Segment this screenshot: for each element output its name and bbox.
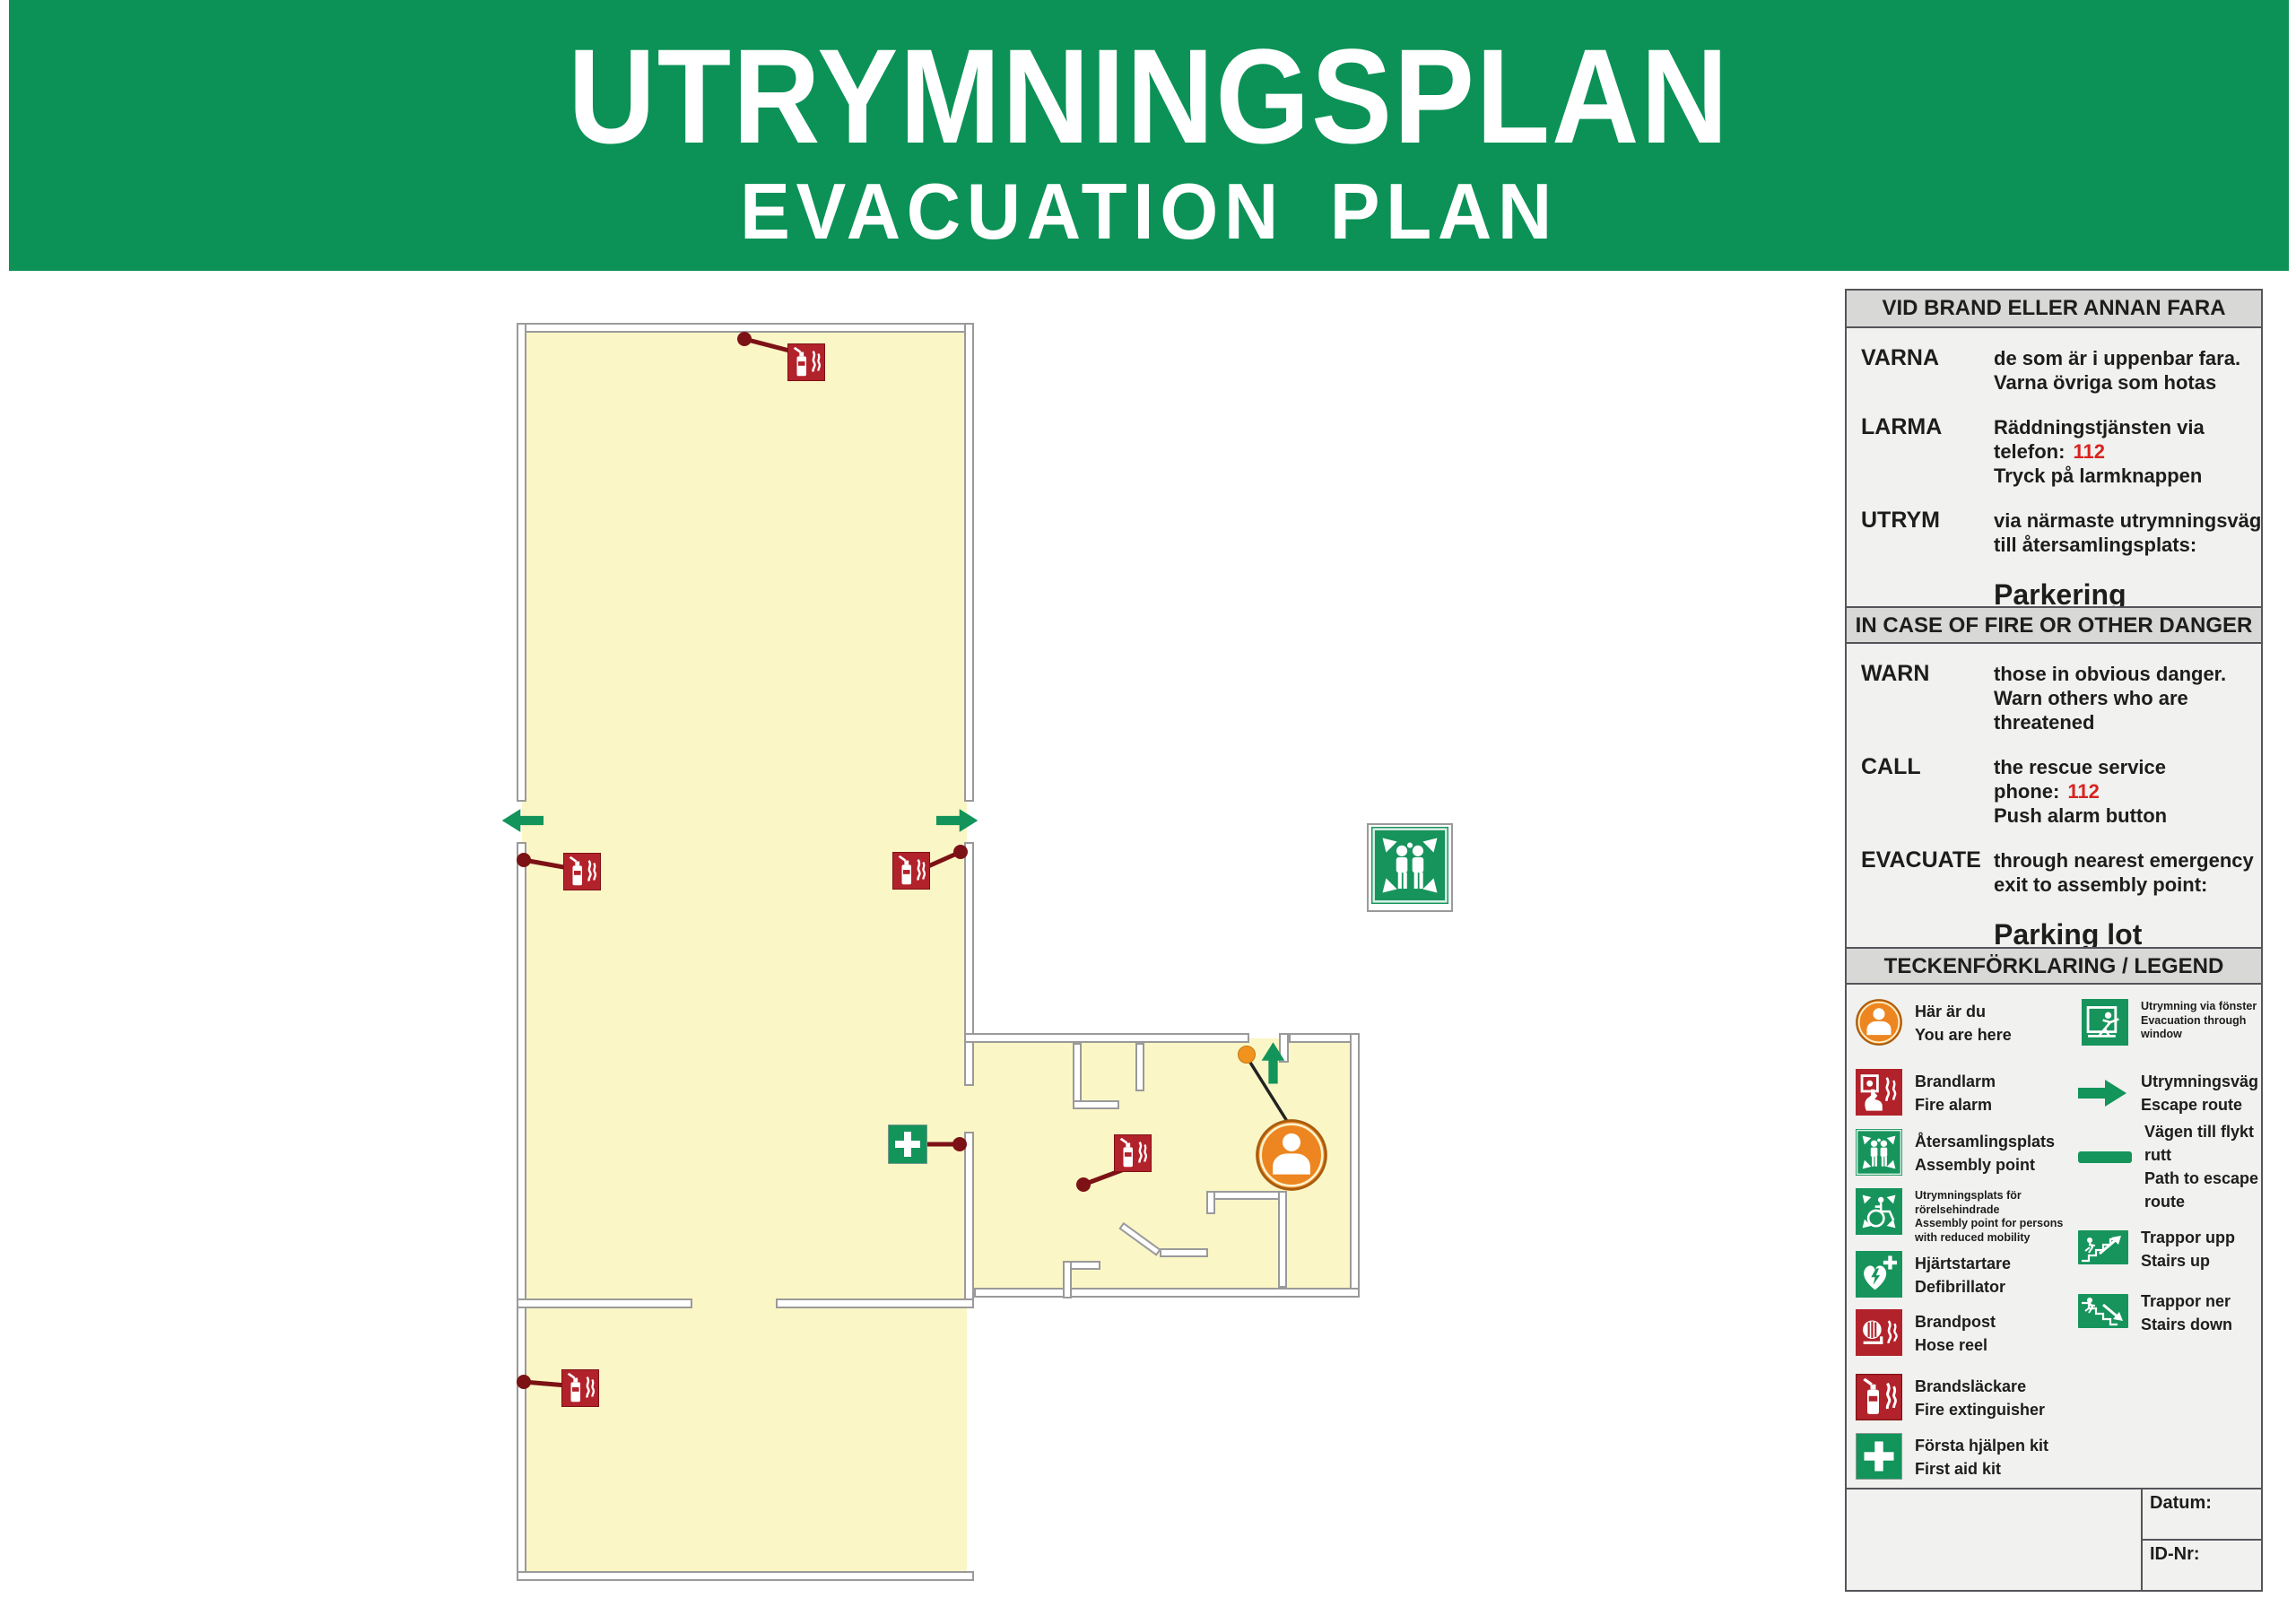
legend-item-fire-extinguisher: BrandsläckareFire extinguisher: [1856, 1374, 2067, 1425]
instruction-line: via närmaste utrymningsväg: [1994, 508, 2261, 533]
instruction-label: VARNA: [1861, 346, 1994, 395]
assembly-reduced-mobility-icon: [1856, 1188, 1902, 1245]
title-block: Datum: ID-Nr:: [1847, 1488, 2261, 1590]
footer-logo-area: [1847, 1489, 2141, 1590]
wall-segment: [1073, 1100, 1119, 1109]
escape-route-arrow-icon: [2078, 1078, 2128, 1116]
instruction-line: threatened: [1994, 710, 2254, 734]
legend-item-escape-path: Vägen till flykt ruttPath to escape rout…: [2078, 1119, 2261, 1213]
instruction-label: WARN: [1861, 662, 1994, 734]
legend-item-assembly-reduced-mobility: Utrymningsplats för rörelsehindradeAssem…: [1856, 1188, 2067, 1245]
id-number-field: ID-Nr:: [2143, 1539, 2261, 1590]
fire-extinguisher-icon: [1114, 1134, 1152, 1172]
wall-segment: [517, 1571, 974, 1581]
wall-segment: [1206, 1191, 1215, 1214]
emergency-number: 112: [2067, 780, 2100, 803]
wall-segment: [964, 323, 974, 802]
leader-dot: [953, 845, 968, 859]
escape-path-line-icon: [2078, 1151, 2132, 1213]
you-are-here-marker: [1256, 1119, 1327, 1195]
defibrillator-icon: [1856, 1251, 1902, 1302]
swedish-instructions: VARNA de som är i uppenbar fara. Varna ö…: [1847, 328, 2261, 606]
legend-item-first-aid: Första hjälpen kitFirst aid kit: [1856, 1433, 2067, 1484]
instruction-line: Warn others who are: [1994, 686, 2254, 710]
assembly-point-icon: [1856, 1129, 1902, 1180]
window-escape-icon: [2082, 999, 2128, 1050]
you-are-here-icon: [1856, 999, 1902, 1050]
legend-item-fire-alarm: BrandlarmFire alarm: [1856, 1069, 2067, 1120]
evacuation-plan-poster: UTRYMNINGSPLAN EVACUATION PLAN: [0, 0, 2296, 1624]
english-instructions: WARN those in obvious danger. Warn other…: [1847, 644, 2261, 947]
exit-point-dot: [1238, 1046, 1256, 1064]
wall-segment: [1073, 1043, 1082, 1109]
fire-alarm-icon: [1856, 1069, 1902, 1120]
leader-dot: [952, 1137, 967, 1151]
instruction-line: Tryck på larmknappen: [1994, 464, 2254, 488]
legend-item-window-escape: Utrymning via fönsterEvacuation through …: [2082, 999, 2257, 1050]
instruction-row-evacuate: UTRYM via närmaste utrymningsväg till åt…: [1861, 508, 2254, 557]
escape-arrow-up-icon: [1259, 1041, 1292, 1084]
first-aid-icon: [1856, 1433, 1902, 1484]
wall-segment: [964, 1132, 974, 1307]
fire-extinguisher-icon: [787, 343, 825, 381]
instruction-row-call: CALL the rescue service phone:112 Push a…: [1861, 755, 2254, 828]
legend-item-assembly-point: ÅtersamlingsplatsAssembly point: [1856, 1129, 2067, 1180]
page-title: UTRYMNINGSPLAN: [123, 29, 2175, 163]
first-aid-icon: [888, 1125, 927, 1164]
legend-item-defibrillator: HjärtstartareDefibrillator: [1856, 1251, 2067, 1302]
instruction-line: through nearest emergency: [1994, 848, 2254, 873]
wall-segment: [517, 842, 526, 1581]
wall-segment: [1063, 1261, 1072, 1298]
fire-extinguisher-icon: [561, 1369, 599, 1407]
instruction-line: exit to assembly point:: [1994, 873, 2254, 897]
wall-segment: [517, 323, 526, 802]
stairs-down-icon: [2078, 1294, 2128, 1336]
leader-dot: [517, 1375, 531, 1389]
fire-extinguisher-icon: [892, 852, 930, 890]
escape-arrow-left-icon: [500, 806, 544, 839]
instruction-row-warn: WARN those in obvious danger. Warn other…: [1861, 662, 2254, 734]
info-panel: VID BRAND ELLER ANNAN FARA VARNA de som …: [1845, 289, 2263, 1592]
escape-arrow-right-icon: [936, 806, 979, 839]
instruction-line: the rescue service: [1994, 755, 2254, 779]
leader-dot: [737, 332, 752, 346]
instruction-line: telefon:112: [1994, 439, 2254, 464]
instruction-label: UTRYM: [1861, 508, 1994, 557]
page-subtitle: EVACUATION PLAN: [66, 172, 2232, 251]
instruction-line: Räddningstjänsten via: [1994, 415, 2254, 439]
section-header-legend: TECKENFÖRKLARING / LEGEND: [1847, 947, 2261, 985]
instruction-row-evacuate: EVACUATE through nearest emergency exit …: [1861, 848, 2254, 897]
leader-dot: [517, 853, 531, 867]
instruction-line: Push alarm button: [1994, 803, 2254, 828]
hose-reel-icon: [1856, 1309, 1902, 1360]
instruction-line: de som är i uppenbar fara.: [1994, 346, 2254, 370]
wall-segment: [964, 1033, 1249, 1043]
instruction-line: till återsamlingsplats:: [1994, 533, 2261, 557]
section-header-english: IN CASE OF FIRE OR OTHER DANGER: [1847, 606, 2261, 644]
fire-extinguisher-icon: [1856, 1374, 1902, 1425]
instruction-line: phone:112: [1994, 779, 2254, 803]
wall-segment: [517, 1298, 692, 1308]
wall-segment: [1350, 1033, 1360, 1298]
instruction-label: LARMA: [1861, 415, 1994, 488]
section-header-swedish: VID BRAND ELLER ANNAN FARA: [1847, 291, 2261, 328]
legend-item-you-are-here: Här är duYou are here: [1856, 999, 2067, 1050]
fire-extinguisher-icon: [563, 853, 601, 890]
wall-segment: [964, 842, 974, 1086]
legend-item-escape-route: UtrymningsvägEscape route: [2078, 1069, 2257, 1116]
instruction-line: those in obvious danger.: [1994, 662, 2254, 686]
legend-item-stairs-up: Trappor uppStairs up: [2078, 1225, 2257, 1272]
leader-dot: [1076, 1177, 1091, 1192]
wall-segment: [776, 1298, 974, 1308]
instruction-line: Varna övriga som hotas: [1994, 370, 2254, 395]
legend-panel: Här är duYou are here BrandlarmFire alar…: [1847, 985, 2261, 1488]
instruction-row-warn: VARNA de som är i uppenbar fara. Varna ö…: [1861, 346, 2254, 395]
legend-item-hose-reel: BrandpostHose reel: [1856, 1309, 2067, 1360]
wall-segment: [1278, 1191, 1287, 1288]
instruction-row-call: LARMA Räddningstjänsten via telefon:112 …: [1861, 415, 2254, 488]
assembly-point-icon: [1367, 823, 1453, 912]
legend-item-stairs-down: Trappor nerStairs down: [2078, 1289, 2257, 1336]
wall-segment: [974, 1288, 1360, 1298]
instruction-label: CALL: [1861, 755, 1994, 828]
wall-segment: [1135, 1043, 1144, 1091]
stairs-up-icon: [2078, 1230, 2128, 1272]
header-banner: UTRYMNINGSPLAN EVACUATION PLAN: [9, 0, 2289, 271]
date-field: Datum:: [2143, 1489, 2261, 1539]
emergency-number: 112: [2073, 440, 2105, 463]
instruction-label: EVACUATE: [1861, 848, 1994, 897]
wall-segment: [1160, 1248, 1208, 1257]
